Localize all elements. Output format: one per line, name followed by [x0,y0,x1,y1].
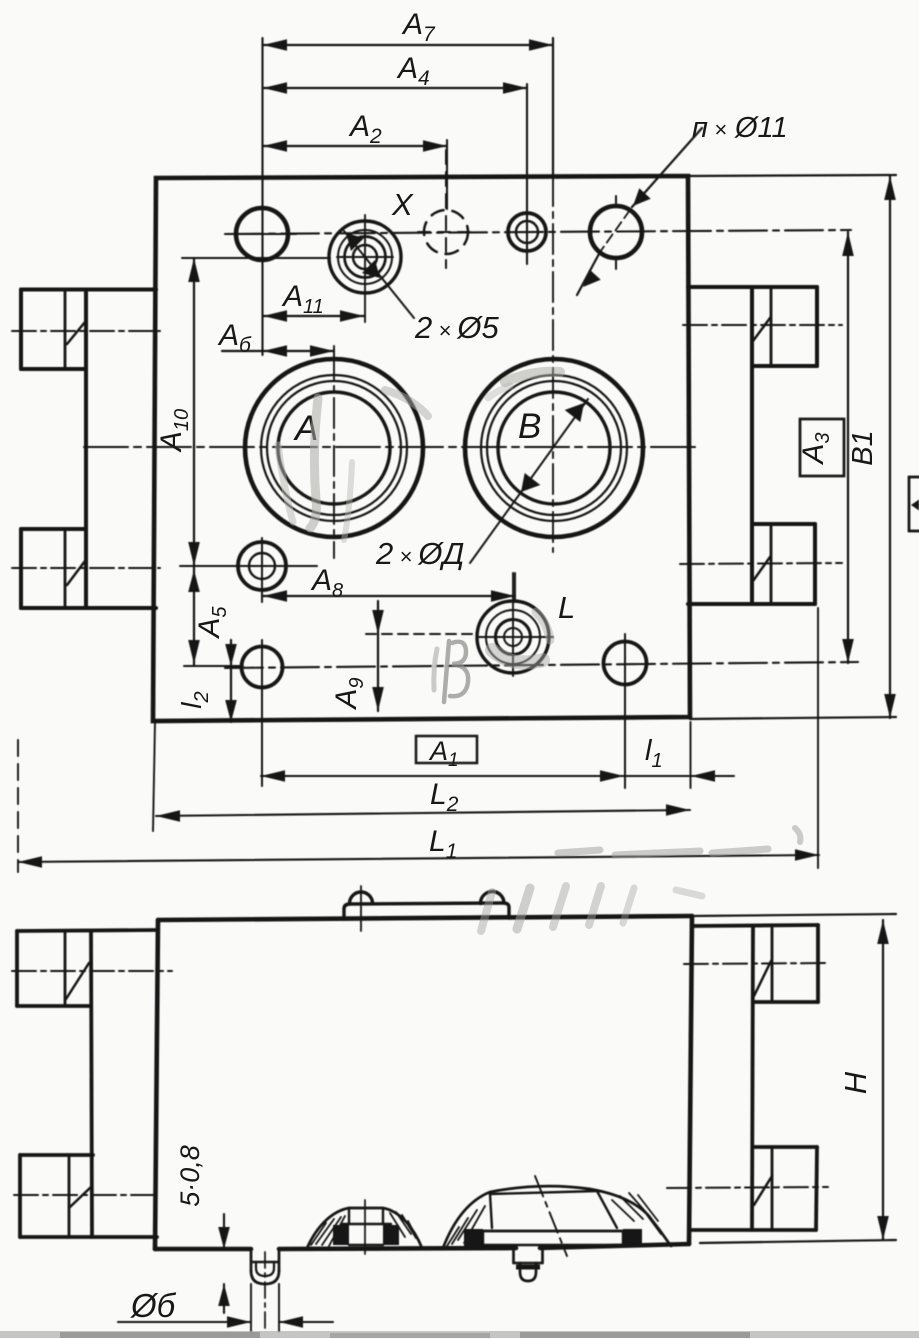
svg-text:Х: Х [391,187,414,222]
svg-text:п × Ø11: п × Ø11 [692,112,788,144]
svg-text:5·0,8: 5·0,8 [175,1145,205,1207]
svg-text:L: L [558,590,575,625]
svg-text:2 × Ø5: 2 × Ø5 [414,310,499,345]
svg-text:Øб: Øб [130,1287,177,1324]
svg-text:Н: Н [838,1071,873,1094]
svg-text:В1: В1 [847,430,879,465]
svg-text:В: В [518,407,541,446]
svg-text:2 × ØД: 2 × ØД [375,536,464,571]
